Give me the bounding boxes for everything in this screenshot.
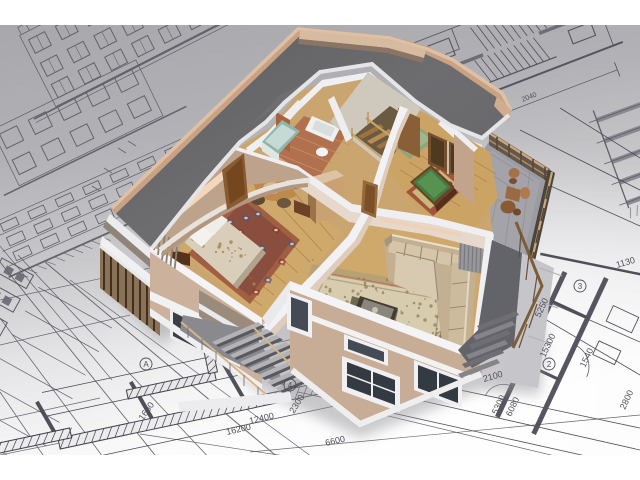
svg-text:A: A [143, 360, 149, 369]
svg-text:3: 3 [578, 282, 583, 291]
svg-text:2: 2 [547, 360, 552, 369]
svg-text:4: 4 [288, 381, 293, 390]
